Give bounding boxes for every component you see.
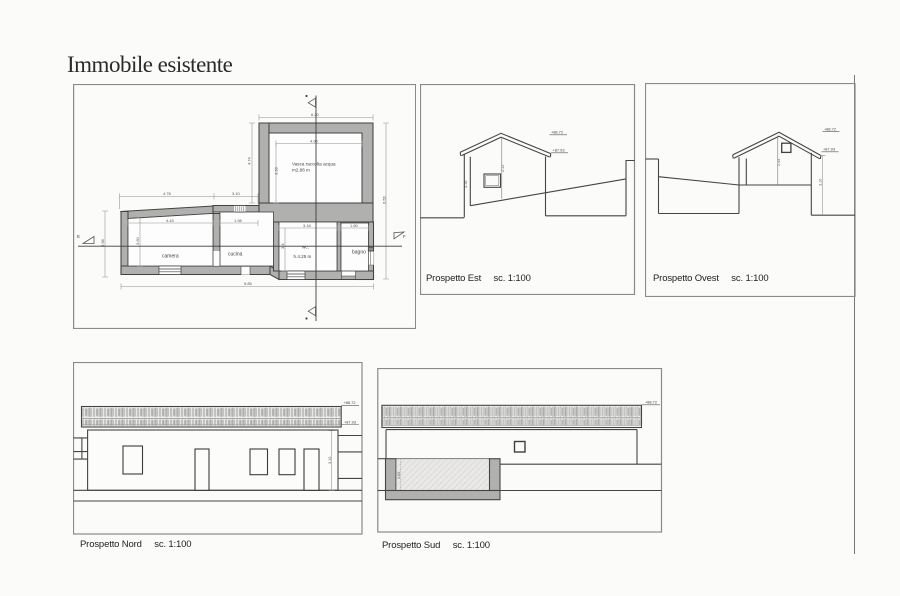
svg-text:+87.93: +87.93	[344, 419, 356, 424]
svg-text:3.10: 3.10	[328, 457, 332, 464]
svg-text:bagno: bagno	[352, 250, 366, 256]
svg-text:4.78: 4.78	[163, 191, 172, 196]
svg-text:+88.72: +88.72	[645, 400, 657, 405]
svg-text:wc.: wc.	[302, 245, 309, 250]
svg-text:3.18: 3.18	[303, 223, 312, 228]
svg-text:camera: camera	[162, 254, 179, 260]
svg-text:1.60: 1.60	[350, 223, 359, 228]
svg-text:2.44: 2.44	[777, 159, 781, 166]
svg-text:9.85: 9.85	[244, 281, 253, 286]
svg-text:+88.72: +88.72	[551, 130, 563, 135]
svg-text:6.56: 6.56	[382, 195, 387, 204]
svg-text:1.98: 1.98	[234, 218, 243, 223]
svg-text:+87.93: +87.93	[823, 147, 835, 152]
svg-text:m2.86 m: m2.86 m	[292, 168, 310, 173]
svg-text:4.95: 4.95	[310, 138, 319, 143]
svg-text:cucina: cucina	[228, 252, 243, 258]
svg-text:3.60: 3.60	[135, 236, 140, 245]
svg-text:+88.72: +88.72	[344, 400, 356, 405]
svg-text:2.12: 2.12	[501, 165, 505, 172]
svg-text:1.63: 1.63	[397, 472, 401, 479]
svg-text:h.4.25 m: h.4.25 m	[294, 254, 312, 259]
svg-text:3.10: 3.10	[818, 179, 822, 186]
svg-text:6.20: 6.20	[311, 112, 320, 117]
svg-text:3.98: 3.98	[100, 238, 105, 247]
svg-text:4.74: 4.74	[247, 156, 252, 165]
svg-text:F: F	[403, 234, 406, 239]
svg-text:+87.93: +87.93	[553, 148, 565, 153]
svg-text:Vasca raccolta acqua: Vasca raccolta acqua	[292, 162, 336, 167]
svg-text:3.58: 3.58	[274, 166, 279, 175]
svg-text:4.43: 4.43	[166, 218, 175, 223]
svg-text:3.16: 3.16	[464, 181, 468, 188]
svg-text:3.10: 3.10	[232, 191, 241, 196]
svg-text:E: E	[77, 234, 80, 239]
svg-text:+88.72: +88.72	[824, 126, 836, 131]
